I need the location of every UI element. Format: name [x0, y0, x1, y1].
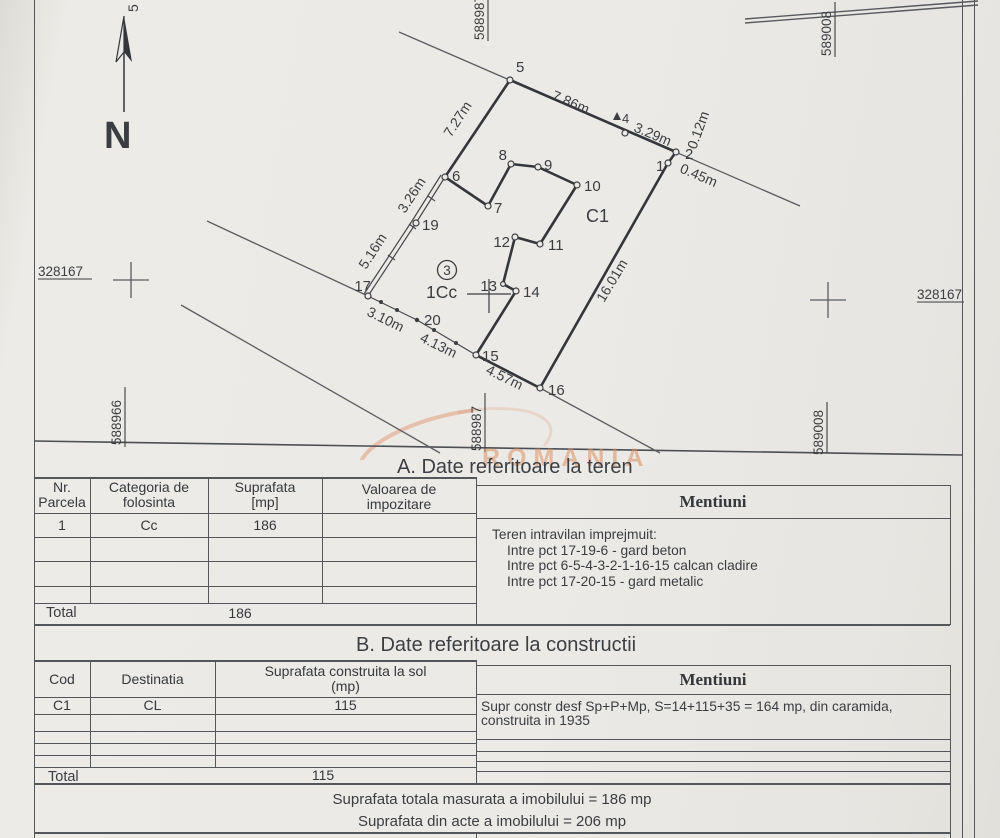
tb-cell-cod: C1 — [34, 698, 90, 713]
summary-right-border — [950, 783, 951, 838]
ta-cell-suprafata: 186 — [208, 514, 322, 536]
summary-line-1: Suprafata totala masurata a imobilului =… — [34, 791, 950, 808]
tb-right — [950, 665, 951, 783]
point-label-4: 4 — [622, 111, 629, 126]
ta-h-sup-1: Suprafata — [235, 480, 296, 495]
north-label: N — [104, 115, 131, 157]
ta-h-categoria: Categoria de folosinta — [90, 478, 208, 512]
ta-cell-categoria: Cc — [90, 514, 208, 536]
tb-bottom — [34, 783, 950, 785]
ta-row-line — [34, 561, 476, 562]
neighbor-line-upper — [207, 221, 368, 296]
measure-3-10: 3.10m — [365, 303, 407, 334]
tb-ment-line — [476, 771, 950, 772]
tb-ment-line — [476, 739, 950, 740]
point4-triangle-icon — [613, 112, 621, 120]
coord-top-center-y: 588987 — [472, 0, 487, 40]
measure-3-29: 3.29m — [632, 119, 674, 149]
tb-ment-line-0: Supr constr desf Sp+P+Mp, S=14+115+35 = … — [481, 699, 893, 714]
point-label-20: 20 — [424, 312, 441, 329]
tb-total-value: 115 — [288, 768, 358, 782]
coord-bottom-left-y: 588966 — [109, 400, 124, 445]
tb-ment-header-bottom — [476, 694, 950, 695]
north-arrow-icon — [116, 16, 132, 112]
ta-h-suprafata: Suprafata [mp] — [208, 478, 322, 512]
ta-total-label: Total — [46, 605, 77, 621]
point-markers — [365, 77, 679, 391]
point-label-12: 12 — [493, 234, 510, 251]
grid-cross-right-icon — [810, 282, 846, 318]
coord-bottom-right-y: 589008 — [811, 410, 826, 455]
measure-5-16: 5.16m — [355, 230, 390, 271]
parcel-label: 1Cc — [426, 282, 457, 302]
tb-row-line — [34, 731, 476, 732]
tb-h-mentiuni: Mentiuni — [476, 666, 950, 693]
point-label-19: 19 — [422, 217, 439, 234]
point-label-8: 8 — [499, 147, 507, 164]
point-label-7: 7 — [494, 200, 502, 217]
point-label-14: 14 — [523, 284, 540, 301]
ta-row-line — [34, 586, 476, 587]
ta-ment-line-3: Intre pct 17-20-15 - gard metalic — [507, 574, 703, 589]
point-label-13: 13 — [480, 278, 497, 295]
tb-row-line — [34, 755, 476, 756]
measure-4-57: 4.57m — [484, 361, 526, 392]
tb-ment-line — [476, 751, 950, 752]
measure-3-26: 3.26m — [394, 174, 429, 215]
ta-h-nr-2: Parcela — [38, 495, 85, 510]
ta-h-val-2: impozitare — [367, 497, 432, 512]
ta-ment-line-1: Intre pct 17-19-6 - gard beton — [507, 543, 686, 558]
section-a-title: A. Date referitoare la teren — [397, 456, 633, 479]
tb-h-suprafata: Suprafata construita la sol (mp) — [215, 662, 476, 696]
point-label-5: 5 — [516, 59, 524, 76]
ta-total-value: 186 — [205, 604, 275, 622]
edge-cut-label: 5 — [125, 4, 141, 12]
ta-h-valoarea: Valoarea de impozitare — [322, 480, 476, 514]
ta-bottom — [34, 624, 950, 626]
page-border-right-outer — [974, 0, 975, 838]
ta-h-val-1: Valoarea de — [362, 482, 436, 497]
ta-ment-header-bottom — [476, 518, 950, 519]
tb-h-destinatia: Destinatia — [90, 662, 215, 696]
point-label-16: 16 — [548, 382, 565, 399]
ta-cell-nr: 1 — [34, 514, 90, 536]
ta-h-cat-1: Categoria de — [109, 480, 189, 495]
point-labels: 5 4 2 1 6 7 8 9 10 11 12 13 14 15 16 17 … — [354, 59, 693, 399]
point-label-15: 15 — [482, 348, 499, 365]
ta-h-nr: Nr. Parcela — [34, 478, 90, 512]
tb-total-label: Total — [48, 769, 79, 785]
tb-cell-destinatia: CL — [90, 698, 215, 713]
measure-7-27: 7.27m — [440, 98, 475, 139]
section-b-title: B. Date referitoare la constructii — [356, 634, 636, 657]
coord-left-x: 328167 — [38, 264, 83, 279]
measure-7-86: 7.86m — [550, 87, 592, 117]
tb-h-cod: Cod — [34, 662, 90, 696]
point-label-17: 17 — [354, 278, 371, 295]
point-label-9: 9 — [544, 157, 552, 174]
tb-row-line — [34, 714, 476, 715]
final-row-top — [34, 832, 950, 834]
scanned-cadastral-document: { "plan": { "north": "N", "edge_cut_labe… — [0, 0, 1000, 838]
measure-4-13: 4.13m — [418, 329, 460, 360]
building-label: C1 — [586, 206, 609, 226]
ta-h-nr-1: Nr. — [53, 480, 71, 495]
ta-ment-line-0: Teren intravilan imprejmuit: — [492, 527, 657, 542]
summary-line-2: Suprafata din acte a imobilului = 206 mp — [34, 813, 950, 830]
tb-total-top — [34, 767, 476, 768]
point-label-6: 6 — [452, 168, 460, 185]
point-label-10: 10 — [584, 178, 601, 195]
tb-row-line — [34, 743, 476, 744]
point-label-1: 1 — [656, 158, 664, 175]
measure-16-01: 16.01m — [593, 256, 631, 304]
tb-ment-line-1: construita in 1935 — [481, 713, 590, 728]
ta-h-mentiuni: Mentiuni — [476, 486, 950, 517]
boundary-lines — [181, 32, 800, 453]
ta-row-line — [34, 537, 476, 538]
tb-ment-line — [476, 761, 950, 762]
ta-h-sup-2: [mp] — [251, 495, 278, 510]
measurement-labels: 7.86m 3.29m 0.12m 0.45m 7.27m 3.26m 5.16… — [355, 87, 720, 393]
point-label-2: 2 — [685, 146, 693, 163]
ta-ment-line-2: Intre pct 6-5-4-3-2-1-16-15 calcan cladi… — [507, 558, 758, 573]
page-border-top — [745, 1, 978, 23]
coord-right-x: 328167 — [917, 287, 962, 302]
tb-h-sup-1: Suprafata construita la sol — [265, 664, 427, 679]
measure-0-45: 0.45m — [678, 160, 720, 190]
ta-h-cat-2: folosinta — [123, 495, 175, 510]
point-label-11: 11 — [548, 237, 564, 254]
page-border-right-inner — [962, 0, 963, 838]
coord-top-right-y: 589008 — [819, 11, 834, 56]
parcel-number: 3 — [443, 263, 451, 278]
grid-cross-left-icon — [113, 262, 149, 298]
final-row-divider — [476, 832, 477, 838]
site-plan: N 5 328167 328167 588966 588987 588987 5… — [0, 0, 1000, 460]
ta-right — [950, 485, 951, 625]
measure-0-12: 0.12m — [684, 109, 712, 151]
tb-h-sup-2: (mp) — [331, 679, 360, 694]
tb-cell-suprafata: 115 — [215, 698, 476, 713]
